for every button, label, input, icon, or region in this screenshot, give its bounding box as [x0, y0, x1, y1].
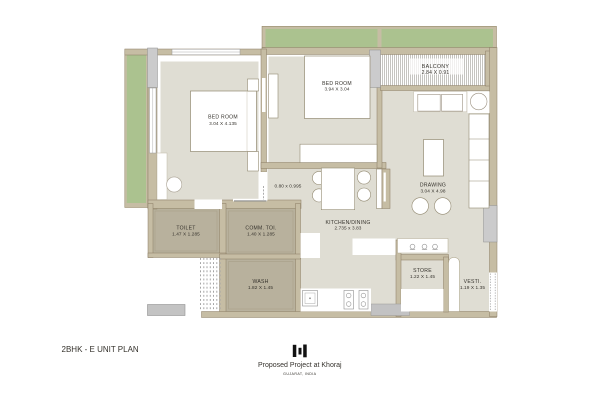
svg-text:3.04 X 4.98: 3.04 X 4.98	[420, 189, 445, 194]
svg-text:Proposed Project at Khoraj: Proposed Project at Khoraj	[258, 362, 342, 369]
svg-text:3.94 X 3.04: 3.94 X 3.04	[324, 87, 349, 92]
svg-text:1.19 X 1.35: 1.19 X 1.35	[460, 285, 485, 290]
svg-text:2.84 X 0.91: 2.84 X 0.91	[422, 70, 450, 76]
svg-text:0.80 x 0.995: 0.80 x 0.995	[274, 184, 301, 189]
svg-text:1.22 X 1.45: 1.22 X 1.45	[410, 274, 435, 279]
svg-text:2.735 x 3.83: 2.735 x 3.83	[334, 226, 361, 231]
svg-text:1.47 X 1.285: 1.47 X 1.285	[172, 232, 200, 237]
svg-text:GUJARAT, INDIA: GUJARAT, INDIA	[283, 372, 316, 376]
svg-text:2BHK - E UNIT PLAN: 2BHK - E UNIT PLAN	[62, 345, 139, 354]
svg-text:3.04 X 4.135: 3.04 X 4.135	[209, 121, 237, 126]
svg-text:BED ROOM: BED ROOM	[208, 115, 238, 121]
svg-text:1.82 X 1.45: 1.82 X 1.45	[248, 285, 273, 290]
svg-text:1.40 X 1.285: 1.40 X 1.285	[247, 232, 275, 237]
